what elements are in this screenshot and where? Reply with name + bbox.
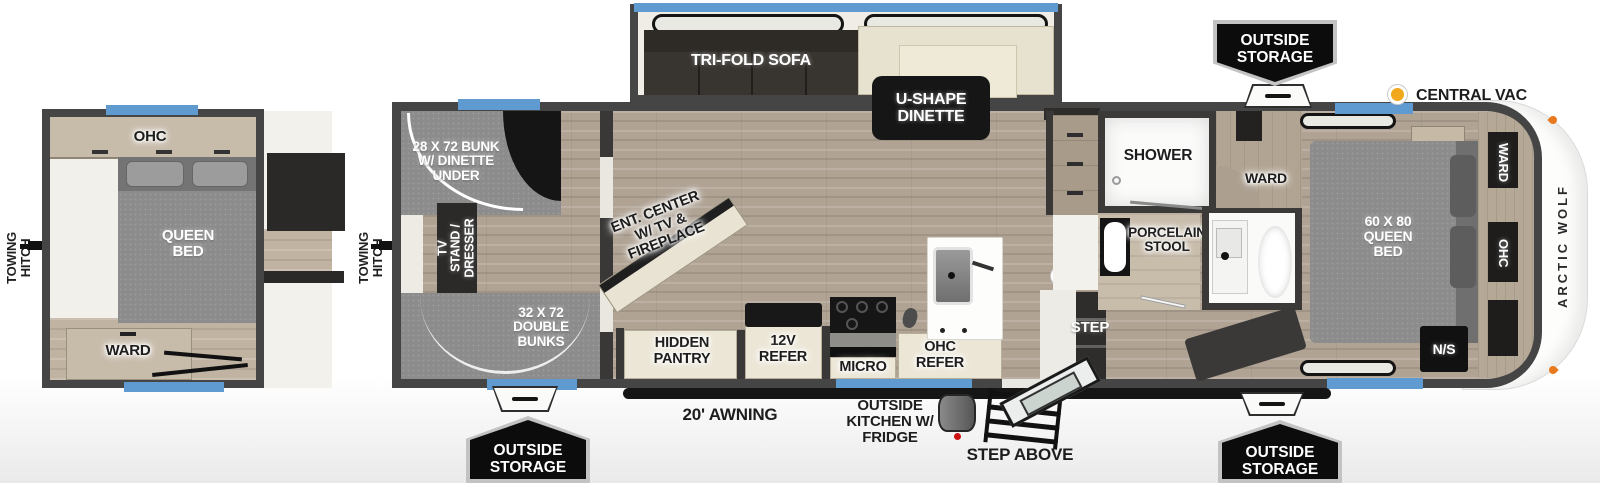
nightstand: N/S [1420,326,1468,372]
shower-drain [1112,176,1121,185]
burner [846,318,858,330]
inset-queen-bed-label: QUEEN BED [158,228,218,260]
ohc-refer-label: OHC REFER [912,340,968,371]
cabinet-handle [156,150,172,154]
inset-ohc-label: OHC [120,129,180,145]
refer-12v-label: 12V REFER [753,334,813,365]
outside-fridge [938,394,976,432]
inset-shelf-panel [258,271,344,283]
micro-label: MICRO [826,360,900,376]
outside-kitchen-label: OUTSIDE KITCHEN W/ FRIDGE [838,398,942,446]
inset-extension-floor [264,229,332,273]
baggage-door [1244,84,1312,108]
front-ward-label: WARD [1496,134,1510,190]
cabinet-handle [92,150,108,154]
burner [856,301,868,313]
mid-ward-label: WARD [1234,171,1298,186]
front-cubby [1488,300,1518,356]
drawer-handle [1067,191,1083,195]
fridge-knob [954,433,961,440]
awning-label: 20' AWNING [665,406,795,424]
bath-sink [1216,228,1242,258]
step-above-label: STEP ABOVE [960,446,1080,464]
ward-slot [1236,111,1262,141]
main-towing-hitch-label: TOWING HITCH [354,212,388,304]
counter [1053,215,1098,290]
outside-storage-badge-top: OUTSIDE STORAGE [1213,20,1337,86]
burner [836,301,848,313]
drawer-handle [1067,133,1083,137]
pillow [192,161,248,187]
inset-tv-panel [267,153,345,231]
bath-rug [1258,226,1292,298]
baggage-door [1240,392,1304,416]
floorplan-canvas: TOWING HITCH OHC QUEEN BED WARD TOWING H… [0,0,1600,483]
porcelain-stool-label: PORCELAIN STOOL [1126,226,1208,255]
toilet [1104,222,1126,272]
bunk-dinette-label: 28 X 72 BUNK W/ DINETTE UNDER [408,140,504,183]
baggage-door [492,386,558,412]
step-label: STEP [1062,320,1118,336]
hidden-pantry-label: HIDDEN PANTRY [648,336,716,367]
window-strip [458,99,540,110]
tri-fold-sofa-label: TRI-FOLD SOFA [652,52,850,69]
inset-ward-label: WARD [96,343,160,359]
cabinet-handle [120,332,136,336]
slide-out-window-strip [634,3,1058,12]
awning-bar [623,388,1331,399]
window-strip [1327,378,1423,389]
drawer-handle [1067,162,1083,166]
bedroom-window [1300,113,1396,129]
wall-post [616,328,624,379]
wall-post [737,330,745,379]
faucet [948,272,955,279]
cabinet-handle [214,150,230,154]
outside-storage-badge-bottom-right: OUTSIDE STORAGE [1218,420,1342,483]
bath-faucet [1221,252,1229,260]
range-handle [830,347,896,357]
drawer-knob [962,328,967,333]
window-strip [106,105,198,115]
pillow [1450,226,1476,288]
brand-text: ARCTIC WOLF [1556,146,1570,346]
tv-stand-dresser: TV STAND / DRESSER [437,203,477,293]
burner [876,301,888,313]
bedroom-window [1300,360,1396,376]
inset-towing-hitch-label: TOWING HITCH [2,212,36,304]
window-strip [1335,103,1413,114]
queen-bed-label: 60 X 80 QUEEN BED [1356,214,1420,259]
outside-storage-badge-bottom-left: OUTSIDE STORAGE [466,416,590,483]
partition-wall-segment [600,111,613,157]
pillow [1450,155,1476,217]
refer-12v-top [745,303,822,327]
partition-wall-segment [600,332,613,379]
double-bunks-label: 32 X 72 DOUBLE BUNKS [505,306,577,349]
drawer-knob [940,328,945,333]
central-vac-legend-dot [1388,85,1407,104]
front-ohc-label: OHC [1496,228,1510,278]
range-body [830,333,896,347]
shower-label: SHOWER [1112,148,1204,165]
step-line [1076,345,1106,348]
u-shape-dinette-plate: U-SHAPE DINETTE [872,76,990,140]
central-vac-legend-label: CENTRAL VAC [1416,87,1536,104]
door-strip [124,382,224,392]
pillow [126,161,184,187]
